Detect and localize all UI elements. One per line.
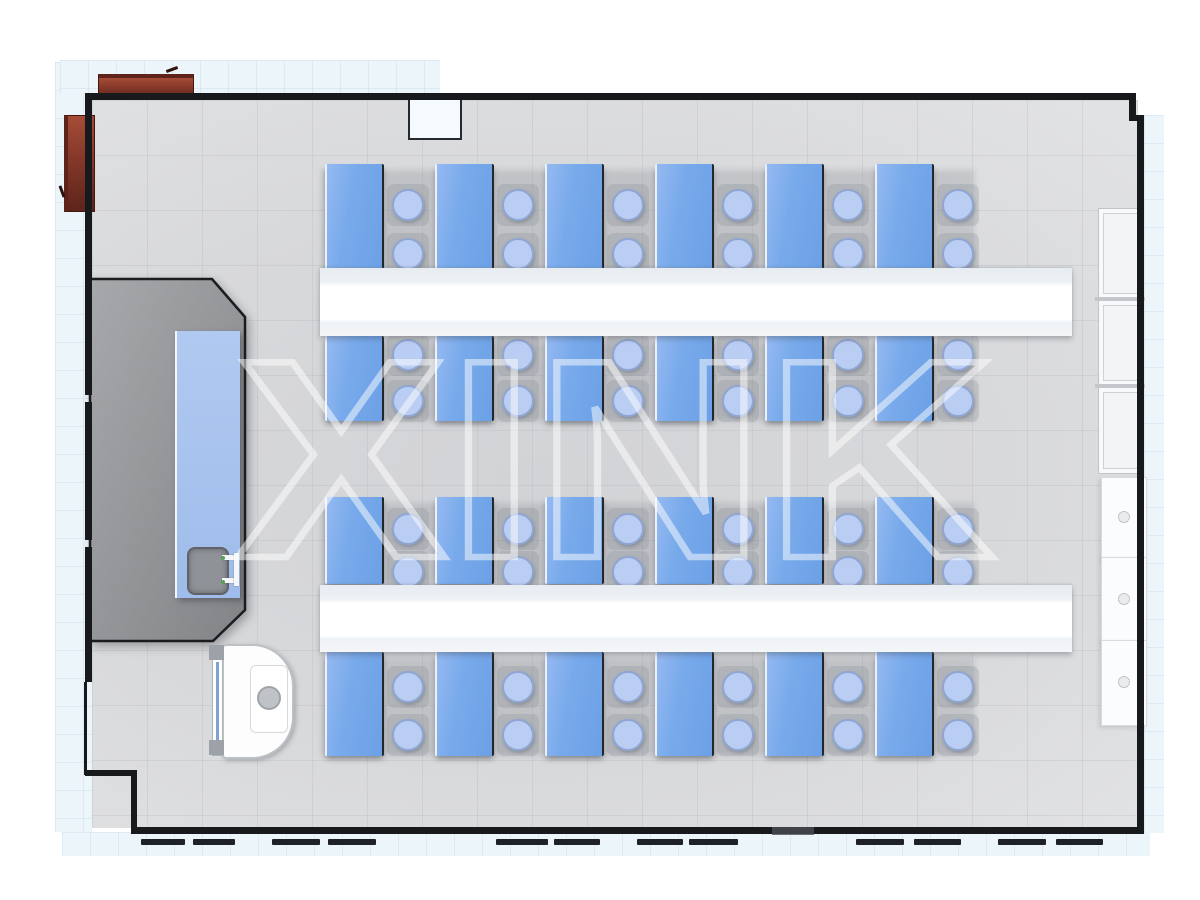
student-desk — [765, 652, 824, 756]
stool — [722, 385, 754, 417]
window-dash — [496, 839, 548, 845]
window-dash — [328, 839, 376, 845]
student-desk — [875, 497, 934, 584]
window-dash — [193, 839, 235, 845]
student-desk — [325, 652, 384, 756]
stool — [722, 556, 754, 588]
cabinet-knob-icon — [1118, 511, 1130, 523]
window-dash — [637, 839, 683, 845]
stool — [612, 513, 644, 545]
stool — [942, 513, 974, 545]
wall-step-bottom-left-v — [131, 771, 137, 831]
lab-bench-1 — [320, 268, 1072, 336]
window-dash — [856, 839, 904, 845]
stool — [502, 385, 534, 417]
student-desk — [435, 652, 494, 756]
student-desk — [325, 336, 384, 421]
student-desk — [325, 497, 384, 584]
student-desk — [435, 497, 494, 584]
faucet-valve-dot — [221, 580, 225, 584]
stool — [612, 719, 644, 751]
window-dash — [998, 839, 1046, 845]
wall-left-segment-2 — [85, 402, 92, 540]
lab-bench-2 — [320, 585, 1072, 652]
student-desk — [435, 164, 494, 273]
stool — [502, 189, 534, 221]
window-dash — [1056, 839, 1103, 845]
stool — [722, 189, 754, 221]
stool — [392, 385, 424, 417]
stool — [722, 671, 754, 703]
stool — [392, 339, 424, 371]
stool — [942, 719, 974, 751]
stool — [942, 385, 974, 417]
exterior-margin-right — [1144, 115, 1164, 833]
window-dash — [914, 839, 961, 845]
glass-cabinet-door — [1103, 213, 1139, 294]
student-desk — [655, 164, 714, 273]
window-dash — [554, 839, 600, 845]
wall-left-segment-4 — [84, 682, 87, 775]
stool — [722, 719, 754, 751]
student-desk — [545, 336, 604, 421]
cabinet-knob-icon — [1118, 676, 1130, 688]
stool — [612, 189, 644, 221]
student-desk — [655, 497, 714, 584]
rear-door — [772, 827, 814, 835]
window-dash — [141, 839, 185, 845]
stool — [502, 513, 534, 545]
wall-right — [1137, 115, 1144, 830]
glass-cabinet-door — [1103, 392, 1139, 469]
window-dash — [689, 839, 738, 845]
stool — [722, 339, 754, 371]
student-desk — [655, 336, 714, 421]
washbasin-rail-cap — [209, 740, 224, 755]
stool — [832, 339, 864, 371]
door-recess — [408, 100, 462, 140]
stool — [722, 513, 754, 545]
stool — [832, 513, 864, 545]
stool — [502, 719, 534, 751]
stool — [832, 189, 864, 221]
stool — [502, 339, 534, 371]
cabinet-knob-icon — [1118, 593, 1130, 605]
washbasin-drain — [257, 686, 281, 710]
stool — [392, 189, 424, 221]
stool — [502, 238, 534, 270]
faucet-valve-dot — [221, 556, 225, 560]
student-desk — [655, 652, 714, 756]
stool — [832, 238, 864, 270]
stool — [942, 238, 974, 270]
student-desk — [875, 164, 934, 273]
stool — [392, 238, 424, 270]
stool — [942, 339, 974, 371]
stool — [942, 556, 974, 588]
student-desk — [545, 652, 604, 756]
wall-left-segment-1 — [85, 93, 92, 395]
wall-top — [85, 93, 1131, 100]
student-desk — [875, 652, 934, 756]
washbasin-rail-cap — [209, 645, 224, 660]
stool — [392, 556, 424, 588]
stool — [832, 556, 864, 588]
stool — [942, 671, 974, 703]
student-desk — [765, 164, 824, 273]
stool — [612, 238, 644, 270]
stool — [612, 385, 644, 417]
student-desk — [765, 497, 824, 584]
student-desk — [545, 497, 604, 584]
floorplan-canvas: XINK — [0, 0, 1200, 900]
washbasin-rail-accent — [216, 662, 219, 740]
window-dash — [272, 839, 320, 845]
student-desk — [435, 336, 494, 421]
wall-bottom — [131, 827, 1144, 834]
student-desk — [545, 164, 604, 273]
stool — [502, 556, 534, 588]
stool — [612, 339, 644, 371]
student-desk — [875, 336, 934, 421]
wall-left-segment-3 — [85, 547, 92, 682]
stool — [832, 385, 864, 417]
stool — [832, 719, 864, 751]
wall-step-bottom-left-h — [85, 770, 137, 776]
faucet-icon — [234, 553, 239, 586]
student-desk — [325, 164, 384, 273]
stool — [612, 671, 644, 703]
stool — [502, 671, 534, 703]
stool — [942, 189, 974, 221]
stool — [392, 671, 424, 703]
glass-cabinet-door — [1103, 305, 1139, 381]
stool — [392, 513, 424, 545]
stool — [722, 238, 754, 270]
stool — [832, 671, 864, 703]
stool — [612, 556, 644, 588]
stool — [392, 719, 424, 751]
student-desk — [765, 336, 824, 421]
